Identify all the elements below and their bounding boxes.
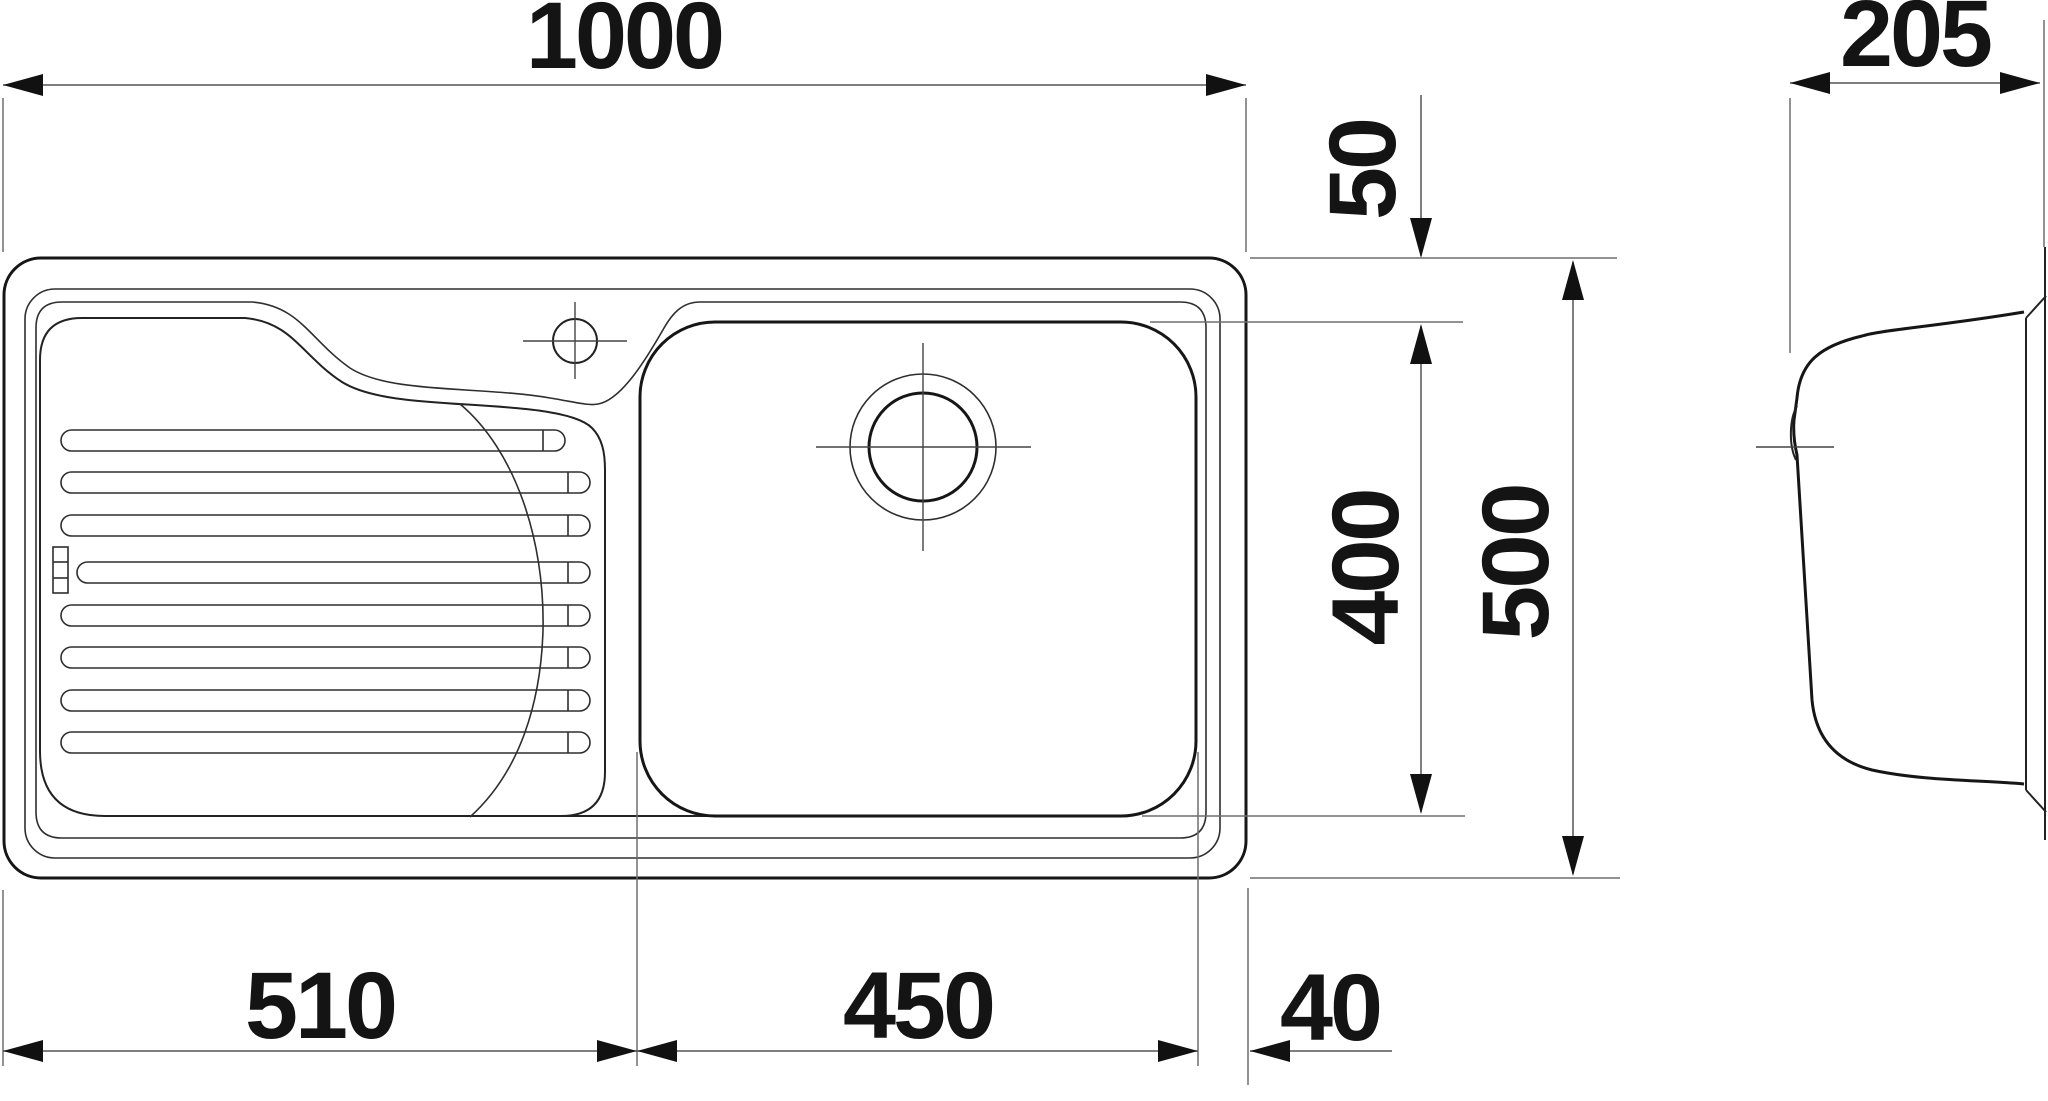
drainboard-ribs xyxy=(61,430,590,753)
arrow-right-icon xyxy=(1158,1040,1198,1062)
dim-label-510: 510 xyxy=(245,953,395,1059)
sink-outer-edge xyxy=(4,258,1246,878)
side-bowl-profile xyxy=(1794,312,2024,784)
side-flange-top-bevel xyxy=(2026,296,2046,318)
overflow-body xyxy=(53,547,68,593)
arrow-up-icon xyxy=(1410,324,1432,364)
tap-hole-icon xyxy=(523,302,627,379)
rib-slot xyxy=(61,430,565,451)
arrow-down-icon xyxy=(1562,836,1584,876)
dim-label-40: 40 xyxy=(1280,955,1380,1061)
rib-slot xyxy=(61,647,590,668)
arrow-up-icon xyxy=(1562,260,1584,300)
side-flange-bottom-bevel xyxy=(2026,790,2046,812)
arrow-right-icon xyxy=(597,1040,637,1062)
overflow-fitting-icon xyxy=(53,547,68,593)
rib-slot xyxy=(61,605,590,626)
sink-top-view xyxy=(4,258,1246,878)
rib-slot xyxy=(77,562,590,583)
rib-slot xyxy=(61,515,590,536)
dim-side-depth: 205 xyxy=(1790,0,2044,353)
dim-bowl-width: 450 xyxy=(637,953,1198,1062)
rim-contour-inner xyxy=(36,302,1206,838)
rib-slot xyxy=(61,732,590,753)
rib-slot xyxy=(61,472,590,493)
rib-slot xyxy=(61,690,590,711)
dim-label-500: 500 xyxy=(1463,486,1569,641)
sink-side-view xyxy=(1756,247,2046,840)
drain-icon xyxy=(816,343,1031,551)
dim-label-50: 50 xyxy=(1310,120,1416,220)
dim-label-1000: 1000 xyxy=(526,0,722,89)
arrow-left-icon xyxy=(637,1040,677,1062)
dim-label-450: 450 xyxy=(843,953,993,1059)
bowl-outline xyxy=(640,322,1196,816)
arrow-left-icon xyxy=(3,1040,43,1062)
arrow-down-icon xyxy=(1410,218,1432,258)
drainboard-slope-arc xyxy=(460,404,543,817)
dim-bowl-length: 400 xyxy=(1313,324,1432,814)
arrow-right-icon xyxy=(1206,74,1246,96)
arrow-down-icon xyxy=(1410,774,1432,814)
arrow-left-icon xyxy=(3,74,43,96)
dim-overall-depth: 500 xyxy=(1463,260,1584,876)
dim-rim-to-bowl: 50 xyxy=(1310,95,1432,258)
drawing-canvas: 1000 205 50 400 500 xyxy=(0,0,2048,1101)
dim-overall-width: 1000 xyxy=(3,0,1246,252)
dim-drainer-width: 510 xyxy=(3,953,637,1062)
arrow-right-icon xyxy=(2000,72,2040,94)
dim-label-400: 400 xyxy=(1313,491,1419,646)
drainboard-outline xyxy=(40,318,605,816)
sink-dimension-drawing: 1000 205 50 400 500 xyxy=(0,0,2048,1101)
rim-contour-outer xyxy=(25,289,1220,858)
arrow-left-icon xyxy=(1790,72,1830,94)
dim-edge-offset: 40 xyxy=(1250,955,1392,1062)
dim-label-205: 205 xyxy=(1840,0,1991,87)
